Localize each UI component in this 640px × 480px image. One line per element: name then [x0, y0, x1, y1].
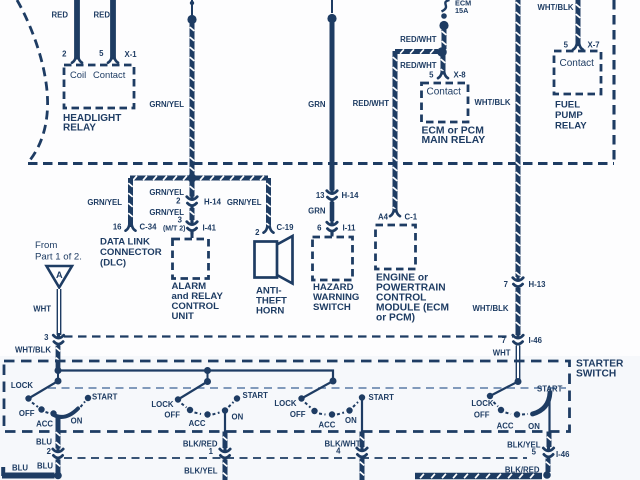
- svg-text:START: START: [243, 391, 269, 400]
- svg-text:ACC: ACC: [36, 420, 53, 429]
- svg-text:ACC: ACC: [189, 419, 206, 428]
- svg-text:A: A: [56, 270, 63, 280]
- svg-text:RED: RED: [94, 11, 111, 20]
- svg-text:RED/WHT: RED/WHT: [400, 61, 437, 70]
- svg-text:GRN/YEL: GRN/YEL: [227, 198, 262, 207]
- svg-text:FUEL: FUEL: [555, 100, 580, 111]
- svg-text:5: 5: [99, 49, 104, 58]
- svg-text:I-41: I-41: [203, 224, 217, 233]
- svg-text:ACC: ACC: [319, 421, 336, 430]
- svg-text:WHT: WHT: [33, 305, 51, 314]
- svg-text:5: 5: [564, 41, 569, 50]
- svg-text:C-1: C-1: [405, 213, 418, 222]
- svg-text:LOCK: LOCK: [274, 399, 296, 408]
- svg-text:LOCK: LOCK: [471, 399, 493, 408]
- svg-text:BLU: BLU: [36, 438, 52, 447]
- svg-text:I-46: I-46: [529, 336, 543, 345]
- svg-text:ACC: ACC: [497, 422, 514, 431]
- svg-text:START: START: [369, 393, 395, 402]
- svg-text:1: 1: [209, 447, 214, 456]
- svg-text:WHT/BLK: WHT/BLK: [475, 98, 511, 107]
- svg-text:PUMP: PUMP: [555, 110, 583, 121]
- svg-text:SWITCH: SWITCH: [313, 302, 351, 313]
- svg-text:(DLC): (DLC): [100, 258, 126, 269]
- svg-text:LOCK: LOCK: [11, 381, 33, 390]
- svg-text:H-14: H-14: [342, 191, 360, 200]
- svg-text:7: 7: [504, 280, 508, 289]
- svg-text:13: 13: [316, 191, 325, 200]
- svg-text:BLU: BLU: [12, 464, 28, 473]
- svg-text:RED/WHT: RED/WHT: [400, 35, 437, 44]
- svg-text:5: 5: [429, 71, 434, 80]
- svg-text:RELAY: RELAY: [63, 123, 96, 134]
- svg-text:BLK/YEL: BLK/YEL: [184, 467, 218, 476]
- svg-text:GRN: GRN: [308, 100, 326, 109]
- svg-text:WHT/BLK: WHT/BLK: [473, 304, 509, 313]
- svg-text:I-11: I-11: [343, 224, 357, 233]
- svg-text:Part 1 of 2.: Part 1 of 2.: [35, 252, 82, 263]
- svg-text:X-1: X-1: [125, 50, 138, 59]
- svg-text:WHT/BLK: WHT/BLK: [15, 346, 51, 355]
- svg-text:GRN/YEL: GRN/YEL: [149, 100, 184, 109]
- svg-text:UNIT: UNIT: [172, 311, 195, 322]
- svg-text:OFF: OFF: [19, 409, 35, 418]
- svg-text:HORN: HORN: [256, 306, 284, 317]
- svg-text:OFF: OFF: [290, 410, 306, 419]
- svg-text:2: 2: [47, 447, 52, 456]
- svg-text:Contact: Contact: [427, 87, 462, 98]
- svg-text:Contact: Contact: [560, 58, 595, 69]
- svg-text:A4: A4: [378, 213, 389, 222]
- svg-text:16: 16: [113, 223, 122, 232]
- svg-text:START: START: [92, 393, 118, 402]
- svg-text:6: 6: [317, 224, 322, 233]
- svg-text:BLU: BLU: [37, 462, 53, 471]
- svg-text:LOCK: LOCK: [151, 400, 173, 409]
- svg-text:START: START: [537, 385, 563, 394]
- svg-text:ON: ON: [528, 422, 540, 431]
- svg-text:H-14: H-14: [204, 198, 222, 207]
- svg-text:(M/T 2): (M/T 2): [163, 226, 186, 233]
- svg-text:WHT: WHT: [493, 349, 511, 358]
- svg-text:4: 4: [336, 447, 341, 456]
- svg-text:X-8: X-8: [454, 71, 467, 80]
- svg-text:RED/WHT: RED/WHT: [353, 99, 390, 108]
- svg-text:RELAY: RELAY: [555, 121, 587, 132]
- svg-text:3: 3: [178, 216, 183, 225]
- svg-text:Contact: Contact: [93, 69, 126, 80]
- svg-text:DATA LINK: DATA LINK: [100, 237, 150, 248]
- svg-text:5: 5: [532, 448, 537, 457]
- svg-text:ON: ON: [232, 413, 244, 422]
- svg-text:15A: 15A: [455, 6, 469, 15]
- svg-text:C-34: C-34: [140, 223, 158, 232]
- svg-text:ON: ON: [345, 416, 357, 425]
- svg-text:OFF: OFF: [164, 411, 180, 420]
- svg-text:3: 3: [44, 333, 49, 342]
- svg-text:2: 2: [255, 228, 260, 237]
- svg-text:X-7: X-7: [588, 41, 600, 50]
- svg-text:OFF: OFF: [474, 411, 490, 420]
- svg-text:BLK/WHT: BLK/WHT: [325, 440, 361, 449]
- svg-text:MAIN RELAY: MAIN RELAY: [422, 135, 486, 146]
- svg-text:2: 2: [176, 197, 181, 206]
- svg-text:CONNECTOR: CONNECTOR: [100, 247, 162, 258]
- svg-text:GRN: GRN: [308, 207, 326, 216]
- svg-text:From: From: [35, 240, 57, 251]
- svg-text:2: 2: [62, 50, 67, 59]
- svg-text:Coil: Coil: [70, 69, 86, 80]
- svg-text:I-46: I-46: [556, 450, 570, 459]
- svg-text:C-19: C-19: [277, 223, 295, 232]
- svg-text:GRN/YEL: GRN/YEL: [87, 198, 122, 207]
- svg-text:H-13: H-13: [529, 280, 547, 289]
- svg-text:WHT/BLK: WHT/BLK: [538, 3, 574, 12]
- svg-text:SWITCH: SWITCH: [576, 369, 616, 380]
- svg-text:RED: RED: [52, 11, 69, 20]
- svg-text:ON: ON: [71, 417, 83, 426]
- svg-text:or PCM): or PCM): [376, 313, 415, 324]
